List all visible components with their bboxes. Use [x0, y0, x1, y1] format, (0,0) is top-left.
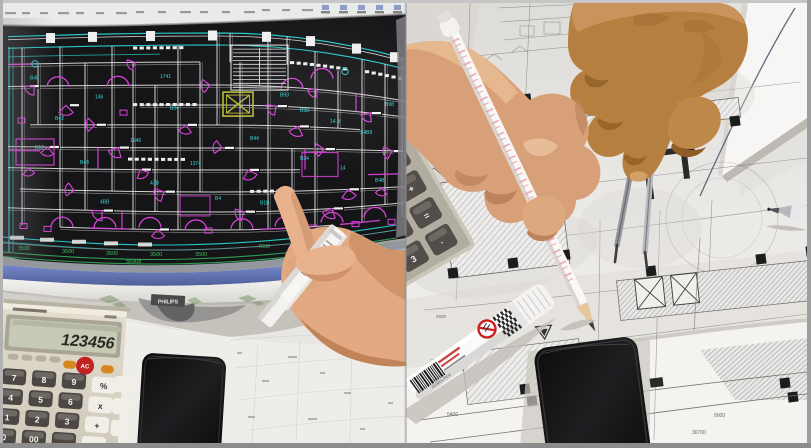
svg-text:6: 6 — [68, 397, 74, 407]
svg-text:B48: B48 — [80, 160, 89, 166]
svg-text:PHILIPS: PHILIPS — [158, 300, 179, 306]
svg-text:2: 2 — [34, 414, 40, 424]
svg-text:5400: 5400 — [447, 412, 458, 418]
svg-text:8: 8 — [41, 375, 47, 385]
svg-text:30700: 30700 — [692, 430, 706, 436]
svg-text:x: x — [98, 401, 104, 411]
svg-text:3500: 3500 — [62, 249, 74, 255]
svg-text:9: 9 — [71, 377, 77, 387]
svg-text:B4B: B4B — [375, 178, 385, 184]
svg-text:AC: AC — [80, 364, 90, 371]
svg-text:123456: 123456 — [59, 331, 117, 352]
svg-text:43B: 43B — [150, 181, 160, 187]
svg-text:1: 1 — [5, 412, 11, 422]
svg-text:7000: 7000 — [258, 244, 270, 250]
svg-text:1374: 1374 — [190, 161, 201, 167]
svg-text:4: 4 — [8, 392, 14, 402]
svg-text:+: + — [94, 421, 100, 431]
svg-text:3500: 3500 — [106, 251, 118, 257]
svg-text:2600: 2600 — [436, 314, 447, 319]
svg-text:7: 7 — [11, 373, 17, 383]
svg-text:56908: 56908 — [126, 259, 141, 265]
svg-text:B1B: B1B — [260, 201, 270, 207]
svg-text:4BB: 4BB — [100, 200, 110, 206]
svg-text:5: 5 — [38, 395, 44, 405]
svg-text:%: % — [100, 381, 109, 392]
svg-text:9000: 9000 — [714, 413, 725, 419]
svg-text:3500: 3500 — [195, 252, 207, 258]
svg-text:3500: 3500 — [150, 252, 162, 258]
svg-text:146: 146 — [95, 94, 104, 100]
svg-text:B4: B4 — [215, 196, 221, 202]
svg-text:1946: 1946 — [130, 138, 141, 144]
svg-text:3: 3 — [64, 416, 70, 426]
